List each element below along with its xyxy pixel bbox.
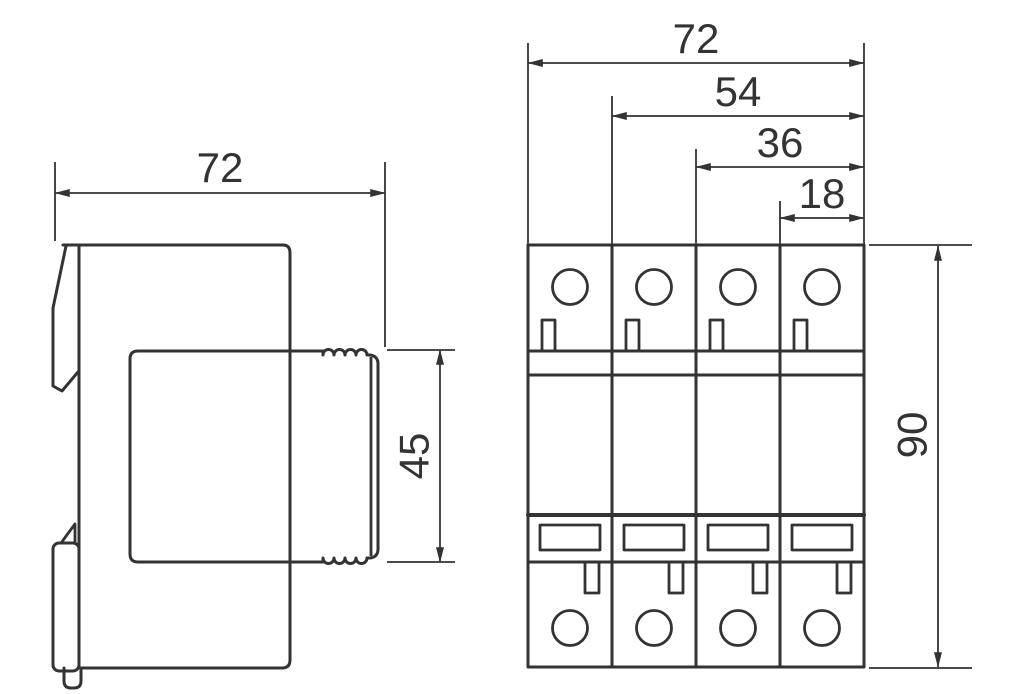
terminal-screw-bottom-2 <box>637 611 672 646</box>
din-rail-flap <box>53 246 78 391</box>
side-body-outline <box>63 245 290 668</box>
clamp-slot-top-2 <box>626 320 639 351</box>
dim-front-54-label: 54 <box>715 68 762 115</box>
dimension-drawing: 72 45 <box>0 0 1024 694</box>
clamp-slot-top-3 <box>710 320 723 351</box>
clamp-slot-top-1 <box>542 320 555 351</box>
clip-latch-triangle <box>61 524 75 543</box>
front-view: 72 54 36 18 <box>528 15 972 668</box>
terminal-screw-top-3 <box>721 270 756 305</box>
clamp-slot-bottom-4 <box>837 562 851 593</box>
terminal-screw-bottom-4 <box>805 611 840 646</box>
indicator-window-2 <box>624 525 684 550</box>
dim-front-36-label: 36 <box>757 119 804 166</box>
dim-front-90-label: 90 <box>889 412 936 459</box>
terminal-screw-top-4 <box>805 270 840 305</box>
side-view: 72 45 <box>53 144 455 688</box>
dim-side-depth-label: 72 <box>197 144 244 191</box>
din-rail-clip <box>53 543 79 671</box>
plug-module-outline <box>130 350 378 564</box>
clamp-slot-top-4 <box>794 320 807 351</box>
dim-plug-height-label: 45 <box>391 433 438 480</box>
indicator-window-1 <box>540 525 600 550</box>
dim-front-height: 90 <box>869 245 972 668</box>
terminal-screw-top-2 <box>637 270 672 305</box>
dim-side-plug-height: 45 <box>387 350 455 562</box>
clamp-slot-bottom-3 <box>753 562 767 593</box>
indicator-window-4 <box>792 525 852 550</box>
terminal-screw-bottom-1 <box>553 611 588 646</box>
terminal-screw-top-1 <box>553 270 588 305</box>
dim-front-18: 18 <box>780 170 864 244</box>
clamp-slot-bottom-1 <box>585 562 599 593</box>
dim-front-18-label: 18 <box>799 170 846 217</box>
terminal-screw-bottom-3 <box>721 611 756 646</box>
dim-front-72-label: 72 <box>673 15 720 62</box>
technical-drawing-canvas: 72 45 <box>0 0 1024 694</box>
indicator-window-3 <box>708 525 768 550</box>
clamp-slot-bottom-2 <box>669 562 683 593</box>
